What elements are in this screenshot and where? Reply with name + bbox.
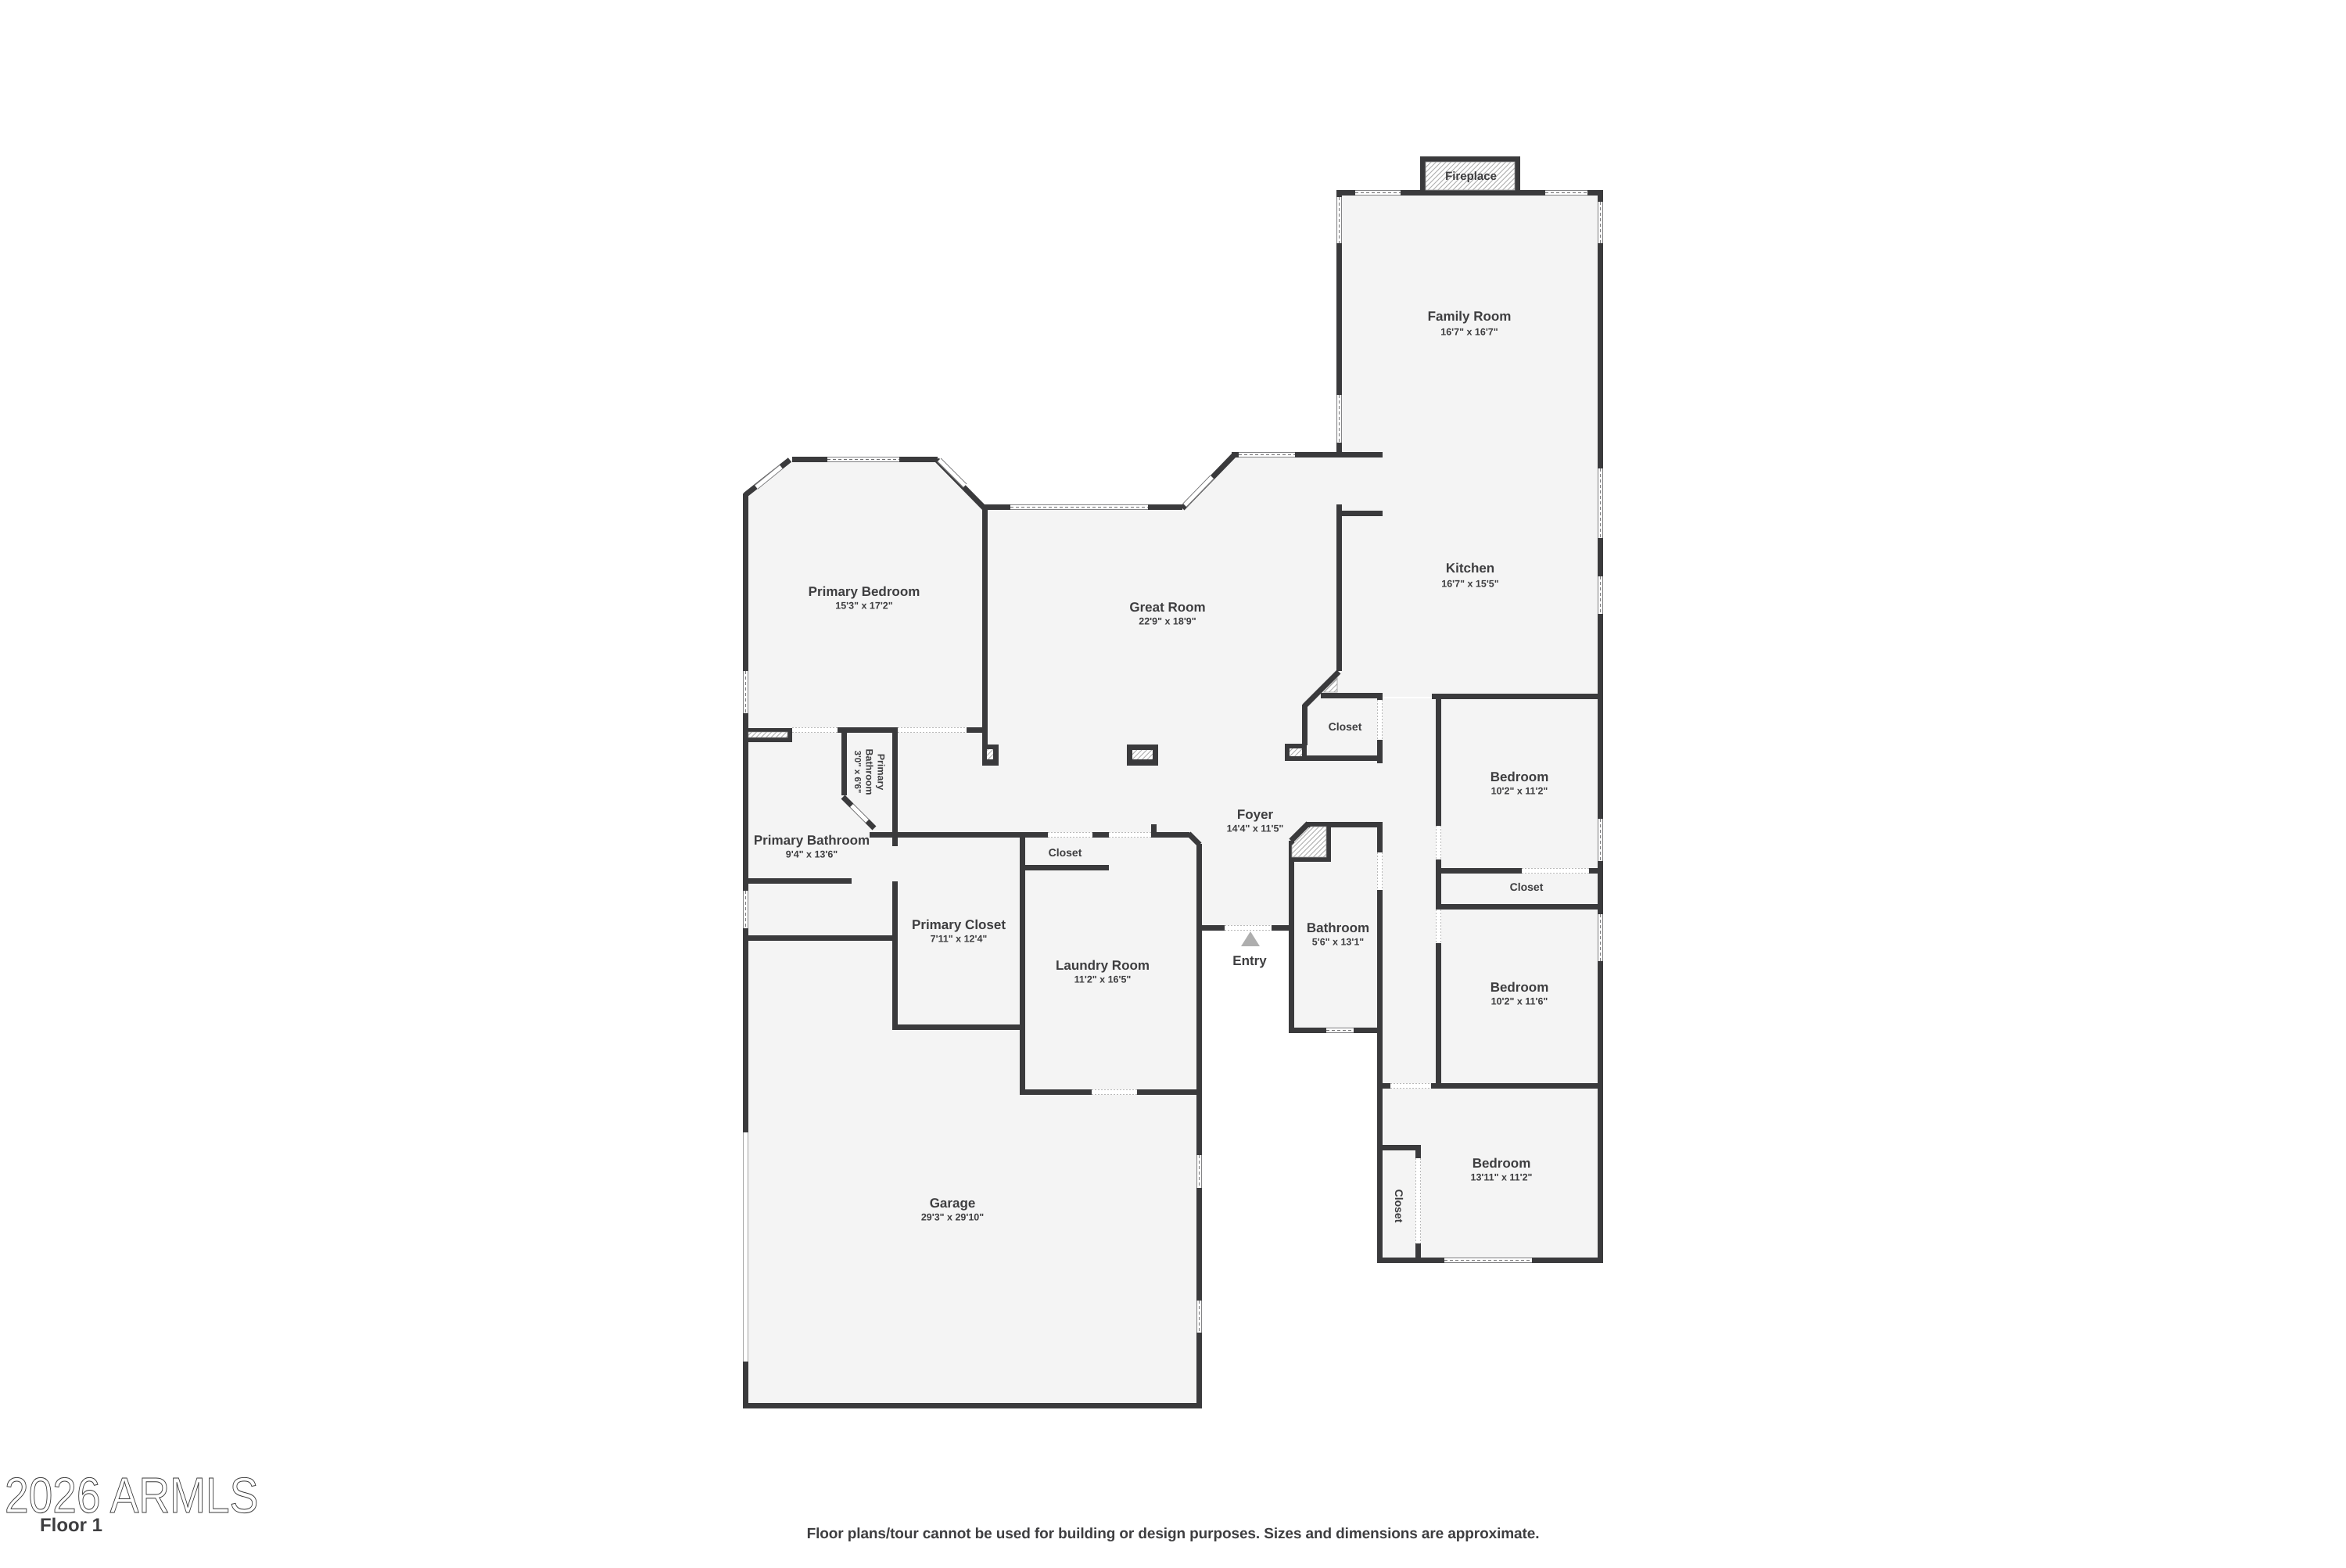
svg-text:11'2" x 16'5": 11'2" x 16'5": [1074, 974, 1132, 985]
svg-text:Laundry Room: Laundry Room: [1056, 958, 1150, 973]
svg-text:Bathroom: Bathroom: [1307, 920, 1369, 935]
svg-text:Bathroom: Bathroom: [864, 748, 875, 795]
svg-text:Entry: Entry: [1232, 953, 1267, 968]
svg-text:16'7" x 16'7": 16'7" x 16'7": [1440, 326, 1498, 337]
svg-text:14'4" x 11'5": 14'4" x 11'5": [1227, 823, 1284, 834]
svg-text:Primary Closet: Primary Closet: [912, 917, 1006, 932]
svg-text:Primary Bedroom: Primary Bedroom: [809, 584, 920, 599]
svg-text:9'4" x 13'6": 9'4" x 13'6": [786, 849, 838, 859]
svg-text:Primary: Primary: [876, 754, 887, 791]
svg-text:7'11" x 12'4": 7'11" x 12'4": [931, 933, 988, 944]
svg-text:Fireplace: Fireplace: [1445, 170, 1497, 183]
svg-text:Bedroom: Bedroom: [1473, 1156, 1531, 1171]
svg-text:16'7" x 15'5": 16'7" x 15'5": [1441, 578, 1498, 589]
svg-text:Floor plans/tour cannot be use: Floor plans/tour cannot be used for buil…: [807, 1526, 1540, 1542]
svg-text:Primary Bathroom: Primary Bathroom: [754, 833, 870, 848]
svg-text:Closet: Closet: [1329, 720, 1362, 733]
svg-text:5'6" x 13'1": 5'6" x 13'1": [1312, 936, 1365, 947]
svg-text:Great Room: Great Room: [1129, 600, 1205, 615]
svg-text:10'2" x 11'6": 10'2" x 11'6": [1491, 996, 1548, 1006]
svg-text:13'11" x 11'2": 13'11" x 11'2": [1471, 1172, 1533, 1182]
svg-text:Kitchen: Kitchen: [1446, 561, 1494, 576]
svg-text:22'9" x 18'9": 22'9" x 18'9": [1139, 615, 1196, 626]
svg-text:Foyer: Foyer: [1237, 807, 1274, 822]
svg-text:Closet: Closet: [1393, 1189, 1405, 1223]
svg-text:15'3" x 17'2": 15'3" x 17'2": [835, 600, 892, 611]
svg-text:Garage: Garage: [930, 1196, 976, 1211]
svg-text:Family Room: Family Room: [1428, 309, 1512, 324]
svg-text:Floor 1: Floor 1: [40, 1515, 102, 1536]
svg-text:29'3" x 29'10": 29'3" x 29'10": [921, 1211, 984, 1222]
svg-text:Closet: Closet: [1510, 881, 1544, 893]
svg-text:Closet: Closet: [1049, 846, 1082, 859]
svg-text:10'2" x 11'2": 10'2" x 11'2": [1491, 785, 1548, 796]
svg-text:Bedroom: Bedroom: [1490, 770, 1549, 784]
svg-text:3'0" x 6'6": 3'0" x 6'6": [852, 751, 862, 794]
svg-text:Bedroom: Bedroom: [1490, 980, 1549, 995]
